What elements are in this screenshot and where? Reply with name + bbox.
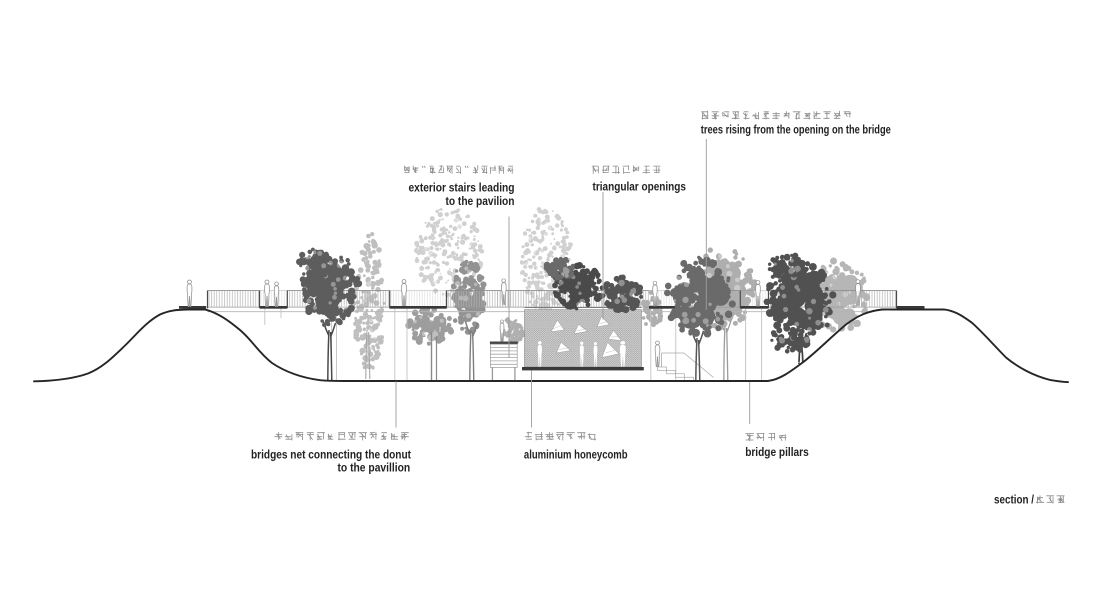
- svg-text:bridge pillars: bridge pillars: [745, 445, 809, 459]
- svg-text:exterior stairs leading: exterior stairs leading: [409, 180, 515, 194]
- svg-text:bridges net connecting the don: bridges net connecting the donut: [251, 447, 411, 461]
- svg-text:trees rising from the opening: trees rising from the opening on the bri…: [701, 122, 891, 136]
- svg-text:section /: section /: [994, 492, 1034, 506]
- svg-text:aluminium honeycomb: aluminium honeycomb: [524, 447, 628, 461]
- svg-text:to the pavilion: to the pavilion: [446, 194, 515, 208]
- svg-text:to the pavillion: to the pavillion: [338, 460, 411, 474]
- svg-text:triangular openings: triangular openings: [593, 179, 687, 193]
